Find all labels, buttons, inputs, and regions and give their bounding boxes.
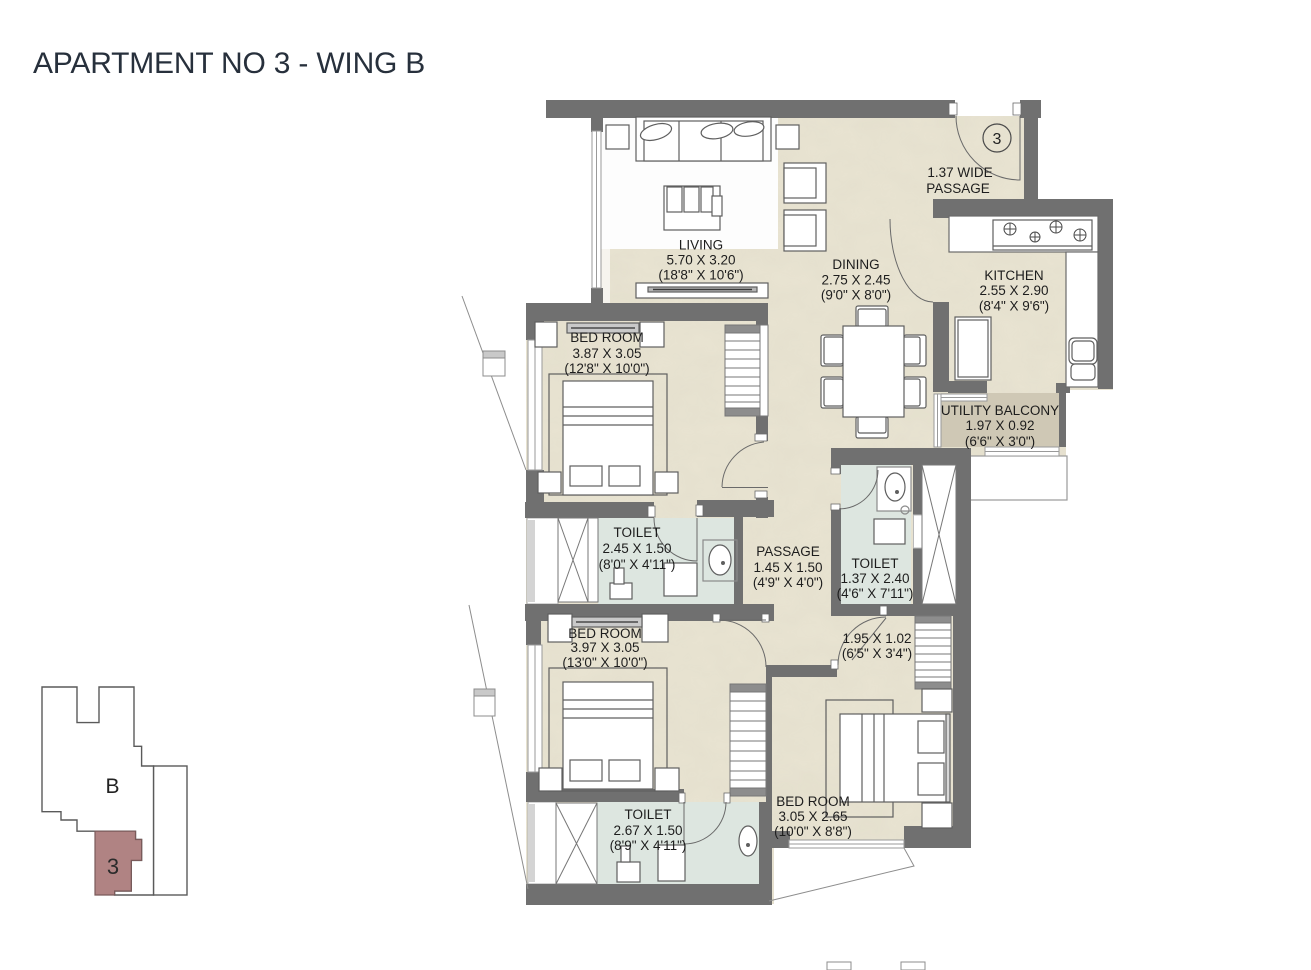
- svg-text:(13'0" X 10'0"): (13'0" X 10'0"): [562, 655, 647, 670]
- svg-text:2.75 X 2.45: 2.75 X 2.45: [821, 273, 890, 288]
- svg-text:(9'0" X 8'0"): (9'0" X 8'0"): [821, 288, 891, 303]
- svg-text:(4'6" X 7'11"): (4'6" X 7'11"): [837, 586, 914, 601]
- svg-text:(8'4" X 9'6"): (8'4" X 9'6"): [979, 299, 1049, 314]
- svg-text:3.05 X 2.65: 3.05 X 2.65: [778, 809, 847, 824]
- svg-text:1.45 X 1.50: 1.45 X 1.50: [753, 560, 822, 575]
- svg-text:1.95 X 1.02: 1.95 X 1.02: [842, 631, 911, 646]
- svg-text:3.87 X 3.05: 3.87 X 3.05: [572, 346, 641, 361]
- svg-text:PASSAGE: PASSAGE: [926, 181, 990, 196]
- svg-text:1.97 X 0.92: 1.97 X 0.92: [965, 418, 1034, 433]
- svg-text:1.37 WIDE: 1.37 WIDE: [927, 165, 992, 180]
- svg-text:APARTMENT NO 3 - WING B: APARTMENT NO 3 - WING B: [33, 47, 425, 80]
- svg-text:TOILET: TOILET: [851, 556, 898, 571]
- svg-text:BED ROOM: BED ROOM: [776, 794, 850, 809]
- svg-text:2.55 X 2.90: 2.55 X 2.90: [979, 283, 1048, 298]
- svg-text:(18'8" X 10'6"): (18'8" X 10'6"): [658, 268, 743, 283]
- svg-text:3: 3: [993, 131, 1002, 148]
- svg-text:DINING: DINING: [832, 257, 879, 272]
- svg-text:5.70 X 3.20: 5.70 X 3.20: [666, 253, 735, 268]
- svg-text:(12'8" X 10'0"): (12'8" X 10'0"): [564, 361, 649, 376]
- svg-text:2.67 X 1.50: 2.67 X 1.50: [613, 823, 682, 838]
- svg-text:TOILET: TOILET: [624, 807, 671, 822]
- svg-text:TOILET: TOILET: [613, 525, 660, 540]
- svg-text:2.45 X 1.50: 2.45 X 1.50: [602, 541, 671, 556]
- svg-text:KITCHEN: KITCHEN: [984, 268, 1043, 283]
- svg-text:UTILITY BALCONY: UTILITY BALCONY: [941, 403, 1059, 418]
- svg-text:B: B: [105, 775, 119, 798]
- svg-text:BED ROOM: BED ROOM: [568, 626, 642, 641]
- svg-text:(10'0" X 8'8"): (10'0" X 8'8"): [774, 824, 852, 839]
- svg-text:PASSAGE: PASSAGE: [756, 544, 820, 559]
- svg-text:3: 3: [107, 854, 119, 879]
- svg-text:(8'0" X 4'11"): (8'0" X 4'11"): [599, 557, 676, 572]
- svg-text:BED ROOM: BED ROOM: [570, 330, 644, 345]
- svg-text:LIVING: LIVING: [679, 238, 723, 253]
- svg-text:(6'6" X 3'0"): (6'6" X 3'0"): [965, 434, 1035, 449]
- svg-text:(8'9" X 4'11"): (8'9" X 4'11"): [610, 838, 687, 853]
- svg-text:3.97 X 3.05: 3.97 X 3.05: [570, 640, 639, 655]
- svg-text:(6'5" X 3'4"): (6'5" X 3'4"): [842, 646, 912, 661]
- svg-text:1.37 X 2.40: 1.37 X 2.40: [840, 571, 909, 586]
- svg-text:(4'9" X 4'0"): (4'9" X 4'0"): [753, 575, 823, 590]
